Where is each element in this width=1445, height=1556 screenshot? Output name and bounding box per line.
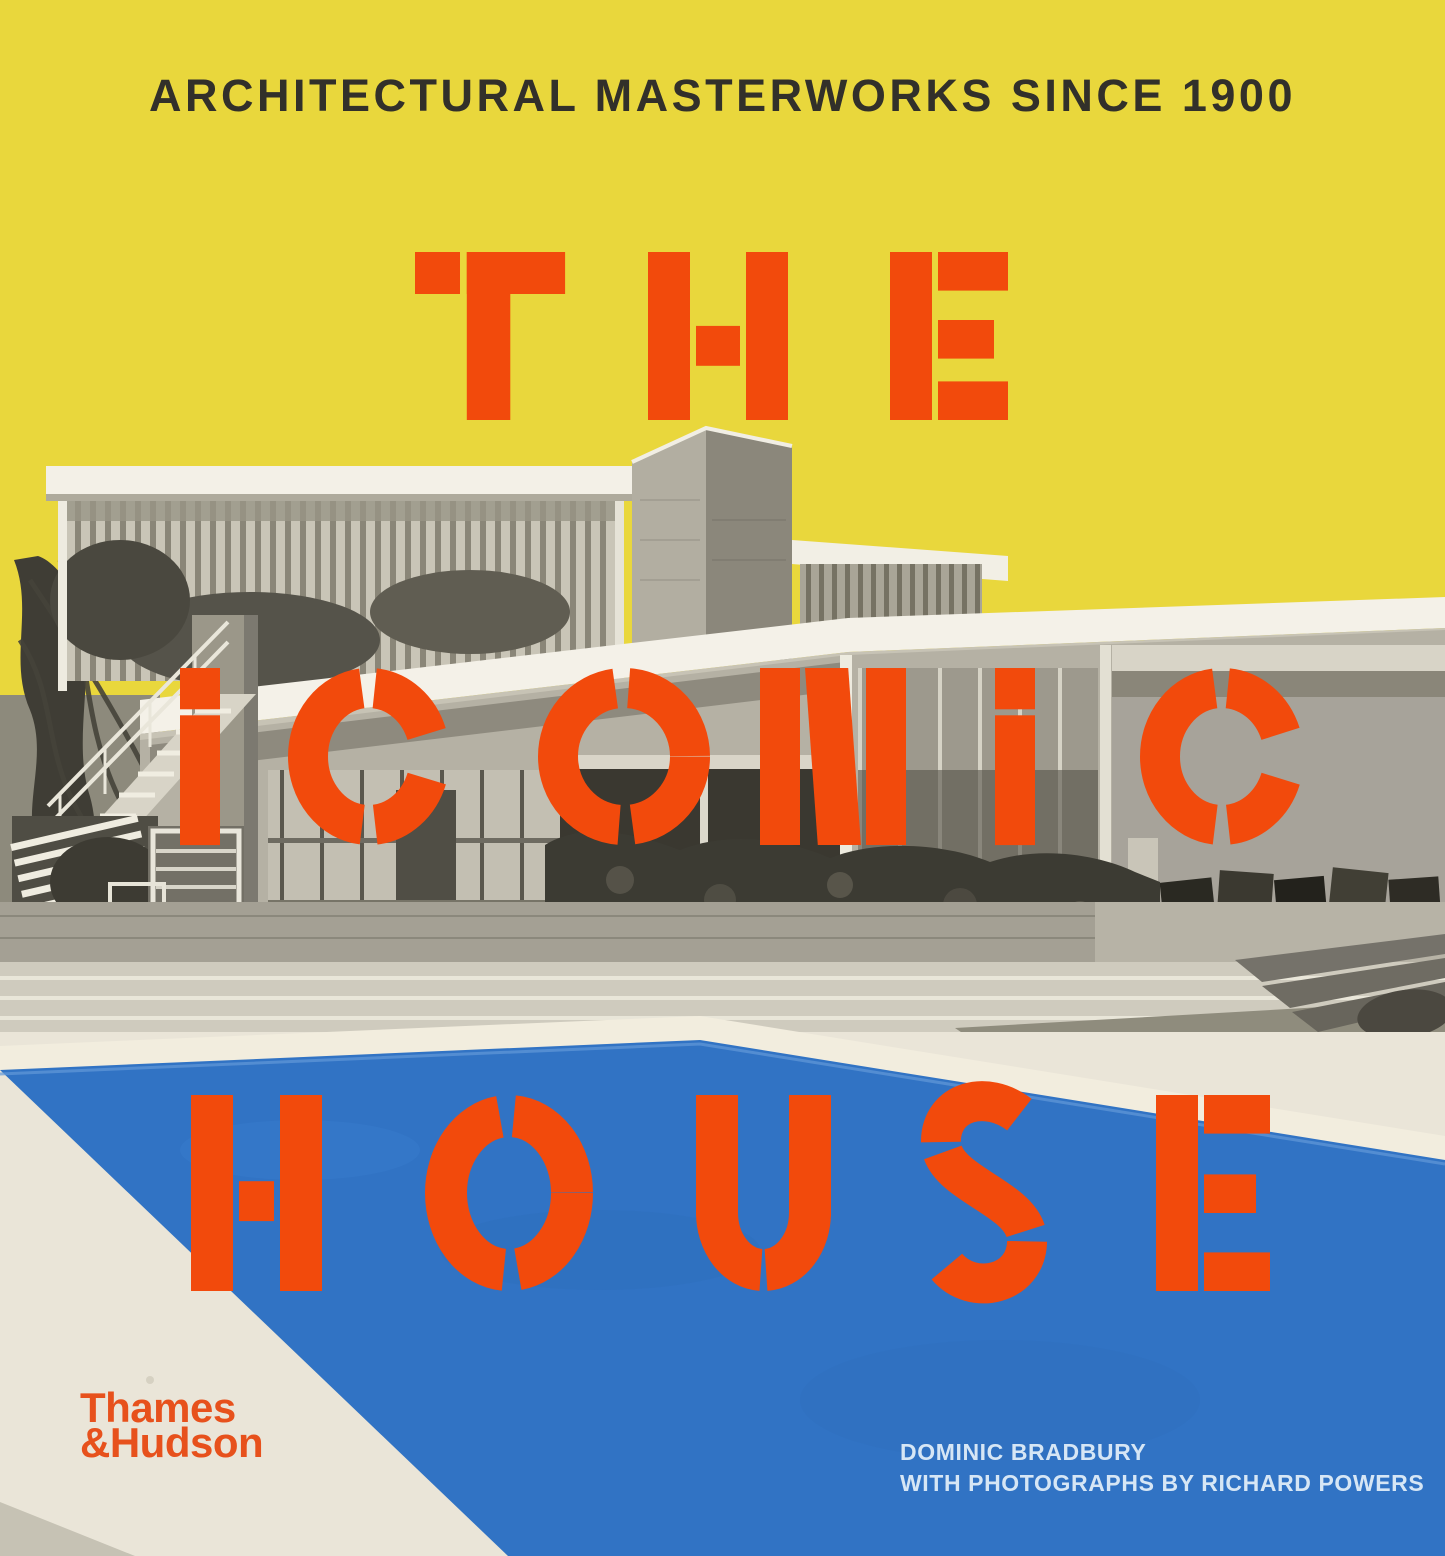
author-credit: DOMINIC BRADBURY: [900, 1437, 1424, 1468]
tagline: ARCHITECTURAL MASTERWORKS SINCE 1900: [0, 70, 1445, 122]
publisher-line2: &Hudson: [80, 1425, 263, 1460]
title-word-house: [191, 1095, 1270, 1291]
photographer-credit: WITH PHOTOGRAPHS BY RICHARD POWERS: [900, 1468, 1424, 1499]
publisher-logo: Thames &Hudson: [80, 1390, 263, 1460]
title-word-the: [415, 252, 1008, 420]
title: [0, 0, 1445, 1556]
credits: DOMINIC BRADBURY WITH PHOTOGRAPHS BY RIC…: [900, 1437, 1424, 1499]
book-cover: ARCHITECTURAL MASTERWORKS SINCE 1900 Tha…: [0, 0, 1445, 1556]
title-word-iconic: [180, 668, 1284, 845]
